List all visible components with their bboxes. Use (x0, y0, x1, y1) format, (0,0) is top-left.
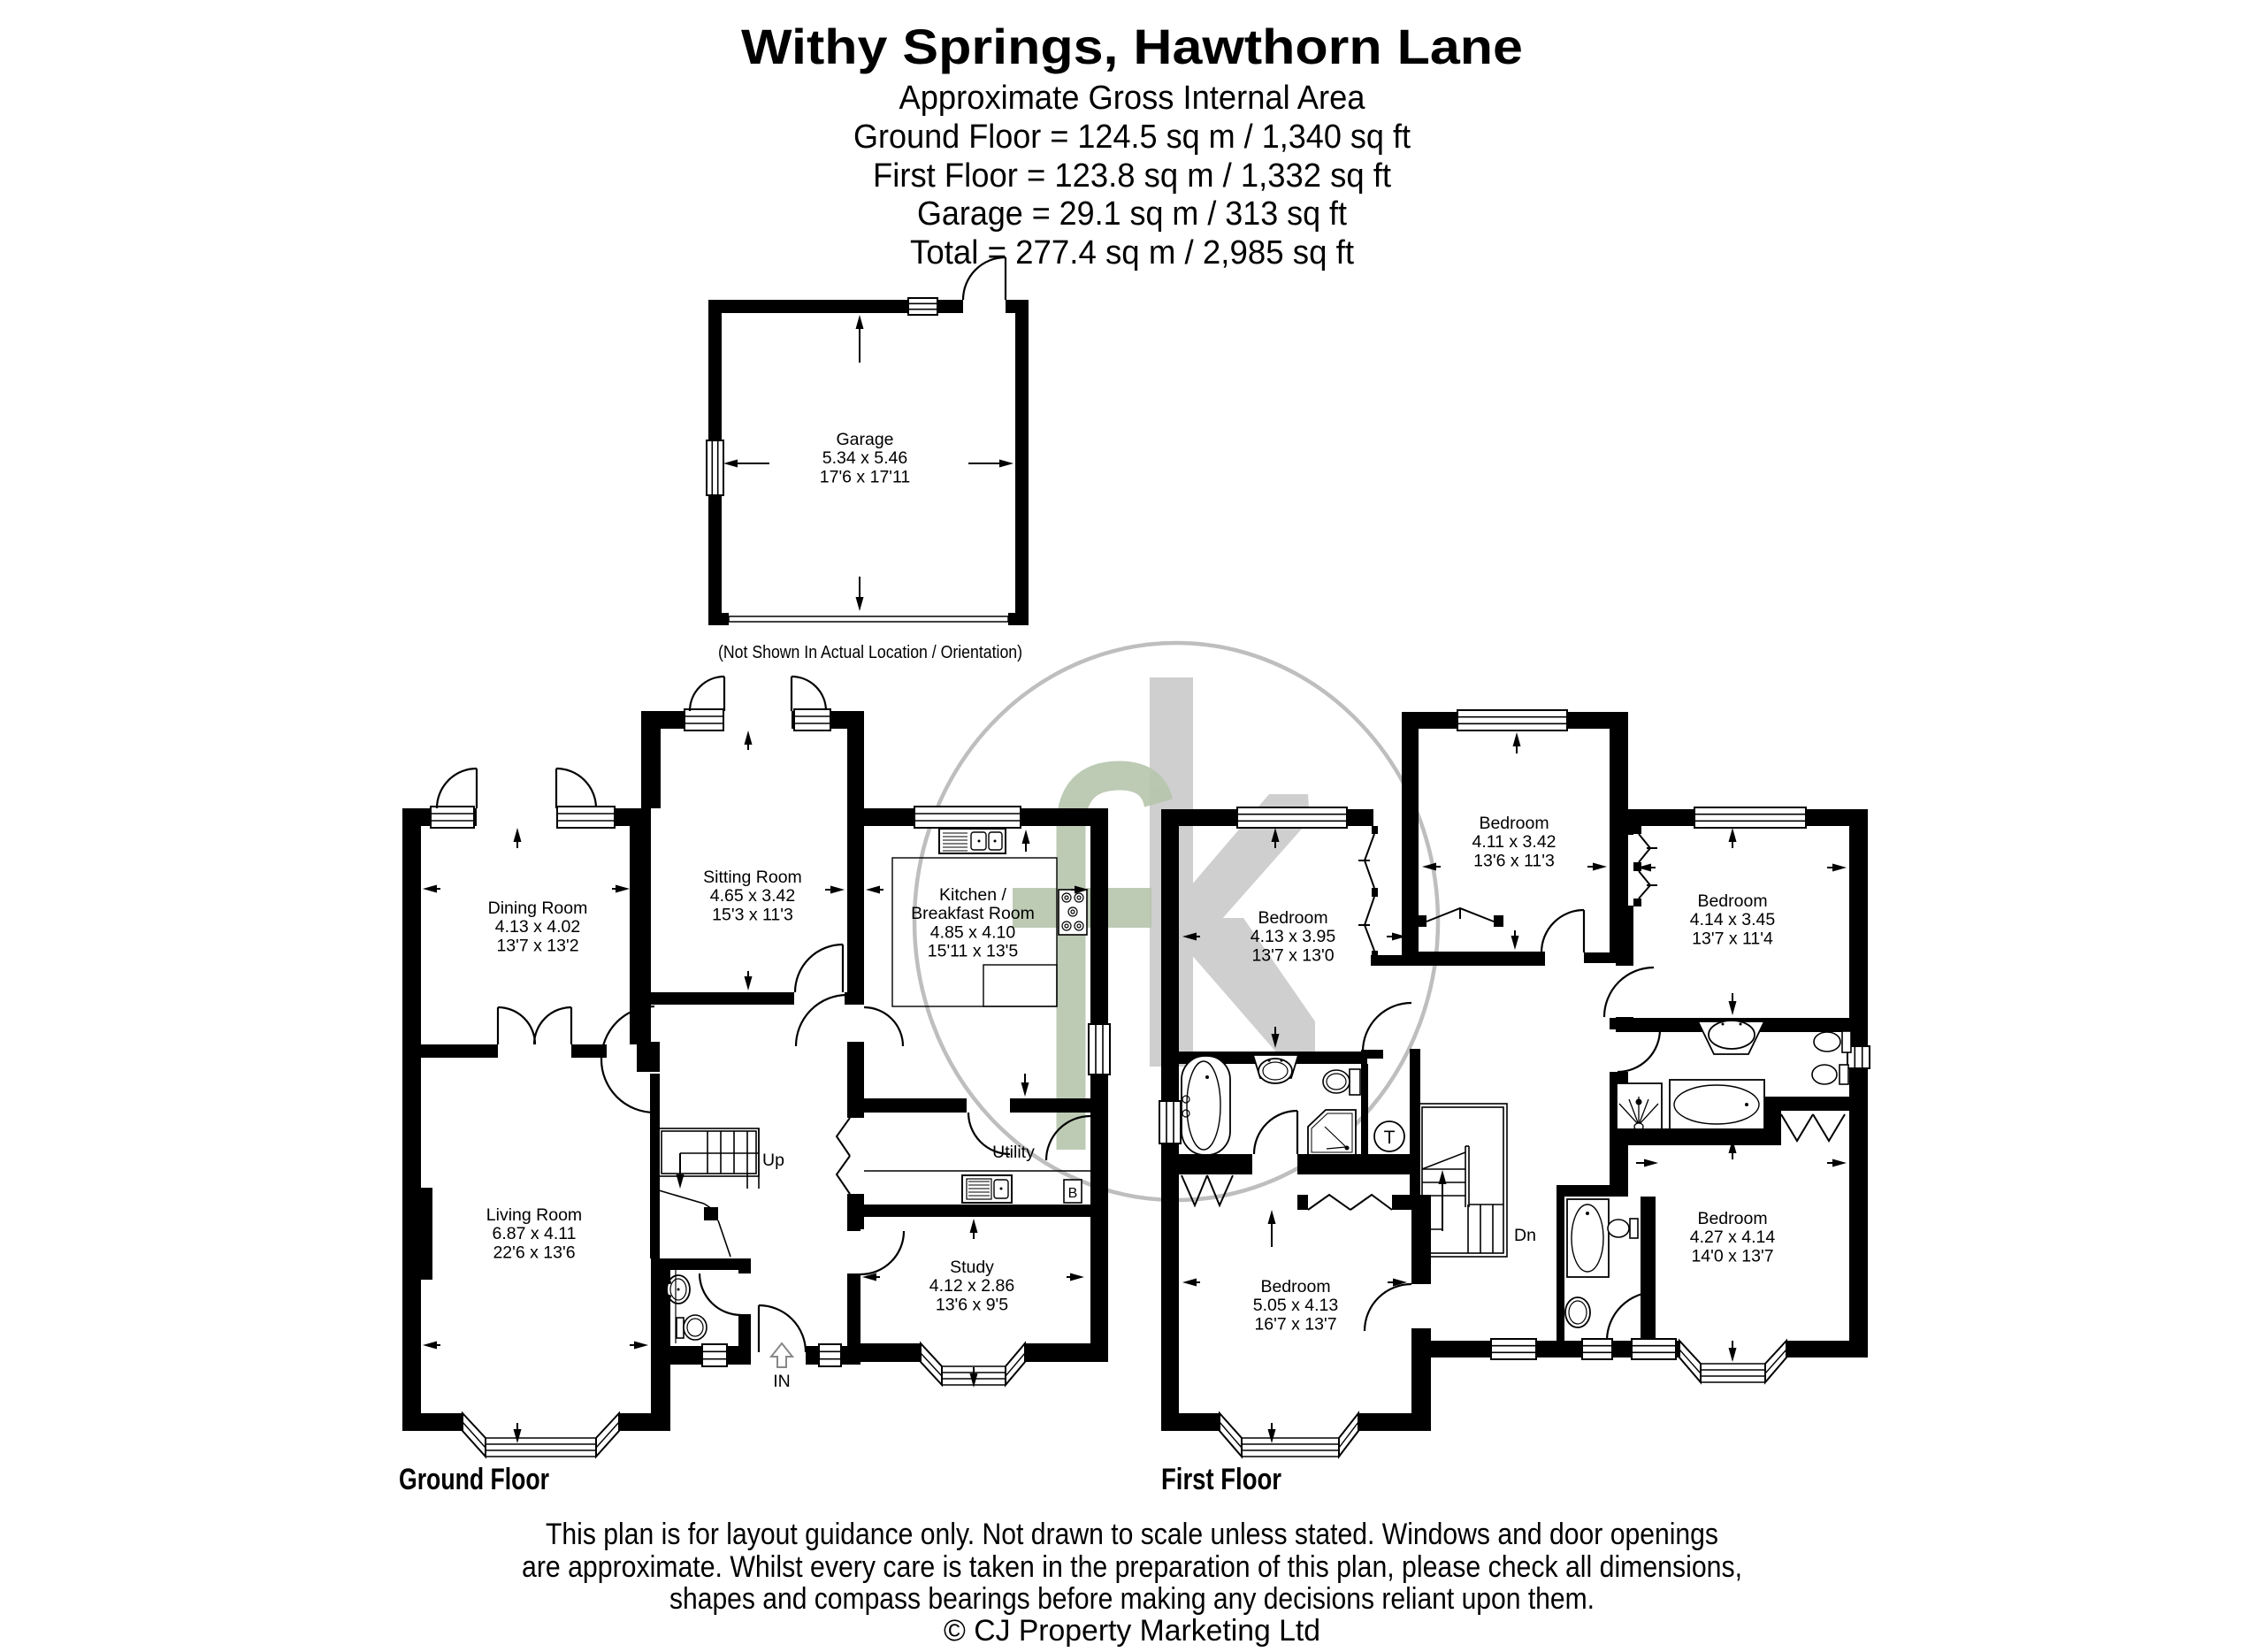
svg-text:Dn: Dn (1514, 1226, 1536, 1245)
svg-text:(Not Shown In Actual Location: (Not Shown In Actual Location / Orientat… (718, 643, 1022, 662)
svg-text:© CJ Property Marketing Ltd: © CJ Property Marketing Ltd (944, 1614, 1320, 1648)
svg-text:Withy Springs, Hawthorn Lane: Withy Springs, Hawthorn Lane (741, 19, 1523, 74)
svg-text:Utility: Utility (992, 1143, 1035, 1162)
svg-text:Up: Up (762, 1151, 784, 1170)
svg-text:Bedroom4.14 x 3.4513'7 x 11'4: Bedroom4.14 x 3.4513'7 x 11'4 (1690, 891, 1776, 948)
svg-text:Sitting Room4.65 x 3.4215'3 x: Sitting Room4.65 x 3.4215'3 x 11'3 (703, 868, 802, 924)
svg-text:This plan is for layout guidan: This plan is for layout guidance only. N… (546, 1518, 1718, 1551)
svg-text:Bedroom4.11 x 3.4213'6 x 11'3: Bedroom4.11 x 3.4213'6 x 11'3 (1472, 814, 1556, 870)
svg-text:Ground Floor = 124.5 sq m / 1,: Ground Floor = 124.5 sq m / 1,340 sq ft (853, 119, 1411, 156)
svg-text:Total = 277.4 sq m / 2,985 sq: Total = 277.4 sq m / 2,985 sq ft (910, 234, 1354, 272)
svg-text:Dining Room4.13 x 4.0213'7 x 1: Dining Room4.13 x 4.0213'7 x 13'2 (488, 899, 588, 955)
svg-text:First Floor = 123.8 sq m / 1,3: First Floor = 123.8 sq m / 1,332 sq ft (873, 157, 1391, 195)
svg-text:shapes and compass bearings be: shapes and compass bearings before makin… (669, 1582, 1595, 1616)
svg-text:B: B (1068, 1186, 1078, 1201)
svg-text:are approximate. Whilst every: are approximate. Whilst every care is ta… (522, 1550, 1742, 1584)
svg-text:First Floor: First Floor (1161, 1463, 1281, 1496)
svg-text:Living Room6.87 x 4.1122'6 x 1: Living Room6.87 x 4.1122'6 x 13'6 (486, 1205, 582, 1262)
svg-text:IN: IN (773, 1372, 791, 1391)
svg-text:Approximate Gross Internal Are: Approximate Gross Internal Area (899, 80, 1366, 117)
svg-text:Ground Floor: Ground Floor (399, 1463, 549, 1496)
svg-text:Garage = 29.1 sq m / 313 sq ft: Garage = 29.1 sq m / 313 sq ft (917, 195, 1347, 233)
svg-text:T: T (1384, 1128, 1396, 1148)
svg-text:Bedroom4.13 x 3.9513'7 x 13'0: Bedroom4.13 x 3.9513'7 x 13'0 (1251, 908, 1336, 965)
svg-text:Bedroom4.27 x 4.1414'0 x 13'7: Bedroom4.27 x 4.1414'0 x 13'7 (1690, 1209, 1776, 1266)
svg-text:Bedroom5.05 x 4.1316'7 x 13'7: Bedroom5.05 x 4.1316'7 x 13'7 (1253, 1277, 1339, 1334)
